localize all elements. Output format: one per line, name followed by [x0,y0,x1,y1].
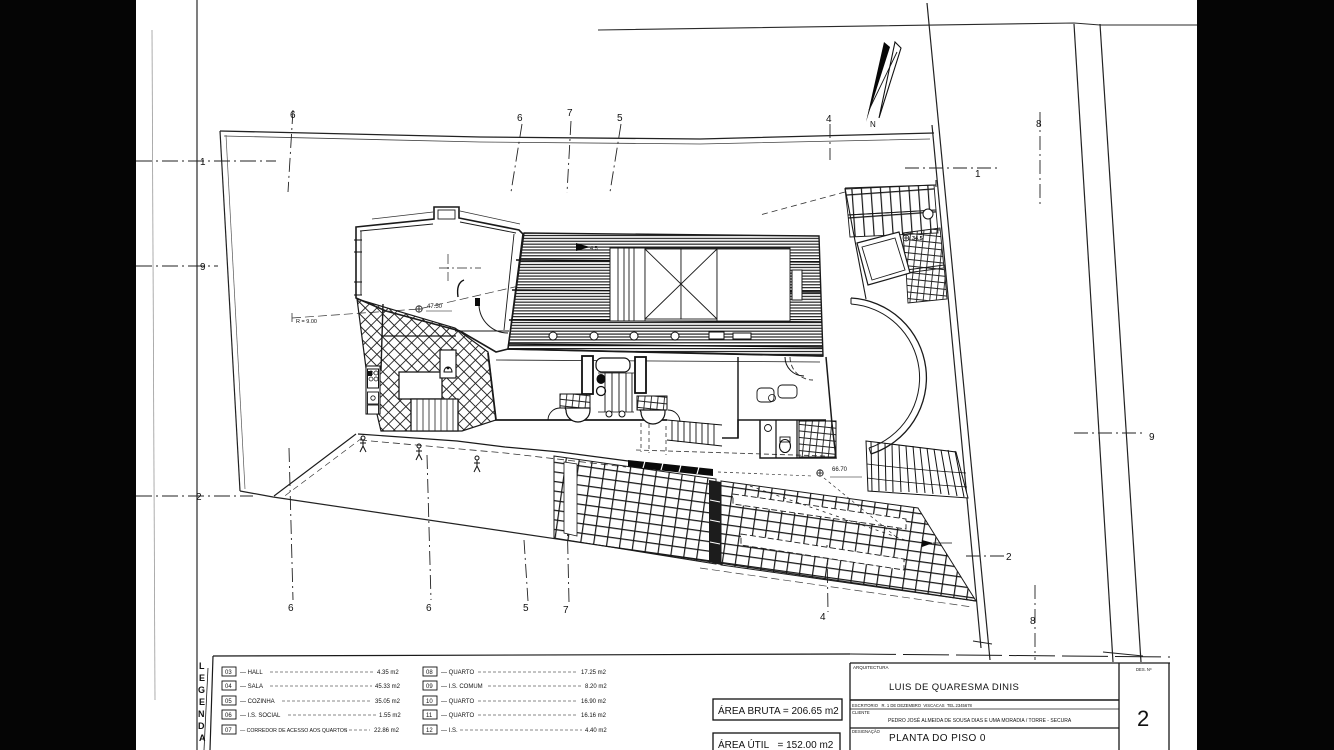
svg-text:ARQUITECTURA: ARQUITECTURA [853,665,889,670]
svg-text:9: 9 [1149,432,1155,443]
svg-text:7: 7 [563,605,569,616]
svg-text:5: 5 [617,113,623,124]
svg-text:34.5: 34.5 [912,236,923,242]
svg-text:11: 11 [426,713,433,719]
svg-text:L: L [199,661,205,671]
svg-text:09: 09 [426,684,433,690]
svg-text:PEDRO JOSÉ ALMEIDA DE SOUSA DI: PEDRO JOSÉ ALMEIDA DE SOUSA DIAS E UMA M… [888,717,1072,724]
svg-text:9: 9 [200,262,206,273]
svg-text:PLANTA DO PISO 0: PLANTA DO PISO 0 [889,733,986,744]
svg-text:8: 8 [1030,616,1036,627]
svg-text:— I.S. COMUM: — I.S. COMUM [441,684,483,690]
svg-text:5: 5 [523,603,529,614]
svg-text:08: 08 [426,670,433,676]
svg-text:R = 9.00: R = 9.00 [296,319,317,325]
svg-text:8: 8 [1036,119,1042,130]
svg-text:N: N [198,709,205,719]
svg-text:16.90 m2: 16.90 m2 [581,699,607,705]
svg-text:— I.S.: — I.S. [441,728,458,734]
svg-text:— QUARTO: — QUARTO [441,699,474,705]
svg-text:7: 7 [567,108,573,119]
svg-text:47.50: 47.50 [427,304,443,310]
svg-text:4.35 m2: 4.35 m2 [377,670,399,676]
svg-text:4: 4 [826,114,832,125]
svg-text:06: 06 [225,713,232,719]
svg-text:— HALL: — HALL [240,670,263,676]
svg-text:07: 07 [225,728,232,734]
svg-text:— CORREDOR DE ACESSO AOS QUART: — CORREDOR DE ACESSO AOS QUARTOS [240,728,348,734]
svg-text:2: 2 [196,492,202,503]
svg-text:16.16 m2: 16.16 m2 [581,713,607,719]
svg-text:G: G [198,685,205,695]
svg-text:10: 10 [426,699,433,705]
svg-text:N: N [870,120,876,129]
svg-text:ESCRITORIO R. 1 DE DEZEMBRO: ESCRITORIO R. 1 DE DEZEMBRO VISCACAS TEL… [852,703,973,708]
svg-text:ÁREA ÚTIL = 152.00 m2: ÁREA ÚTIL = 152.00 m2 [718,738,834,750]
svg-text:D: D [198,721,205,731]
svg-text:2: 2 [1137,706,1149,731]
svg-text:04: 04 [225,684,232,690]
svg-text:66.70: 66.70 [832,467,848,473]
svg-text:4.5: 4.5 [590,246,598,252]
svg-text:— COZINHA: — COZINHA [240,699,275,705]
svg-text:6: 6 [426,603,432,614]
svg-text:1: 1 [200,157,206,168]
svg-text:8.20 m2: 8.20 m2 [585,684,607,690]
svg-text:— QUARTO: — QUARTO [441,670,474,676]
svg-text:1: 1 [975,169,981,180]
svg-text:6: 6 [288,603,294,614]
svg-text:4.40 m2: 4.40 m2 [585,728,607,734]
svg-text:A: A [199,733,206,743]
svg-text:17.25 m2: 17.25 m2 [581,670,607,676]
svg-text:— QUARTO: — QUARTO [441,713,474,719]
svg-text:22.86 m2: 22.86 m2 [374,728,400,734]
svg-text:6: 6 [290,110,296,121]
svg-text:E: E [199,673,205,683]
svg-text:DES. Nº: DES. Nº [1136,667,1152,672]
svg-text:03: 03 [225,670,232,676]
svg-text:2: 2 [1006,552,1012,563]
svg-text:CLIENTE: CLIENTE [852,710,870,715]
svg-text:45.33 m2: 45.33 m2 [375,684,401,690]
svg-text:05: 05 [225,699,232,705]
svg-text:— I.S. SOCIAL: — I.S. SOCIAL [240,713,281,719]
svg-text:6: 6 [517,113,523,124]
svg-text:35.05 m2: 35.05 m2 [375,699,401,705]
svg-text:LUIS DE QUARESMA DINIS: LUIS DE QUARESMA DINIS [889,682,1019,693]
svg-text:E: E [199,697,205,707]
svg-text:DESIGNAÇÃO: DESIGNAÇÃO [852,729,881,734]
svg-text:12: 12 [426,728,433,734]
svg-text:ÁREA BRUTA = 206.65 m2: ÁREA BRUTA = 206.65 m2 [718,704,839,717]
svg-text:1.55 m2: 1.55 m2 [379,713,401,719]
svg-text:— SALA: — SALA [240,684,263,690]
svg-text:4: 4 [820,612,826,623]
